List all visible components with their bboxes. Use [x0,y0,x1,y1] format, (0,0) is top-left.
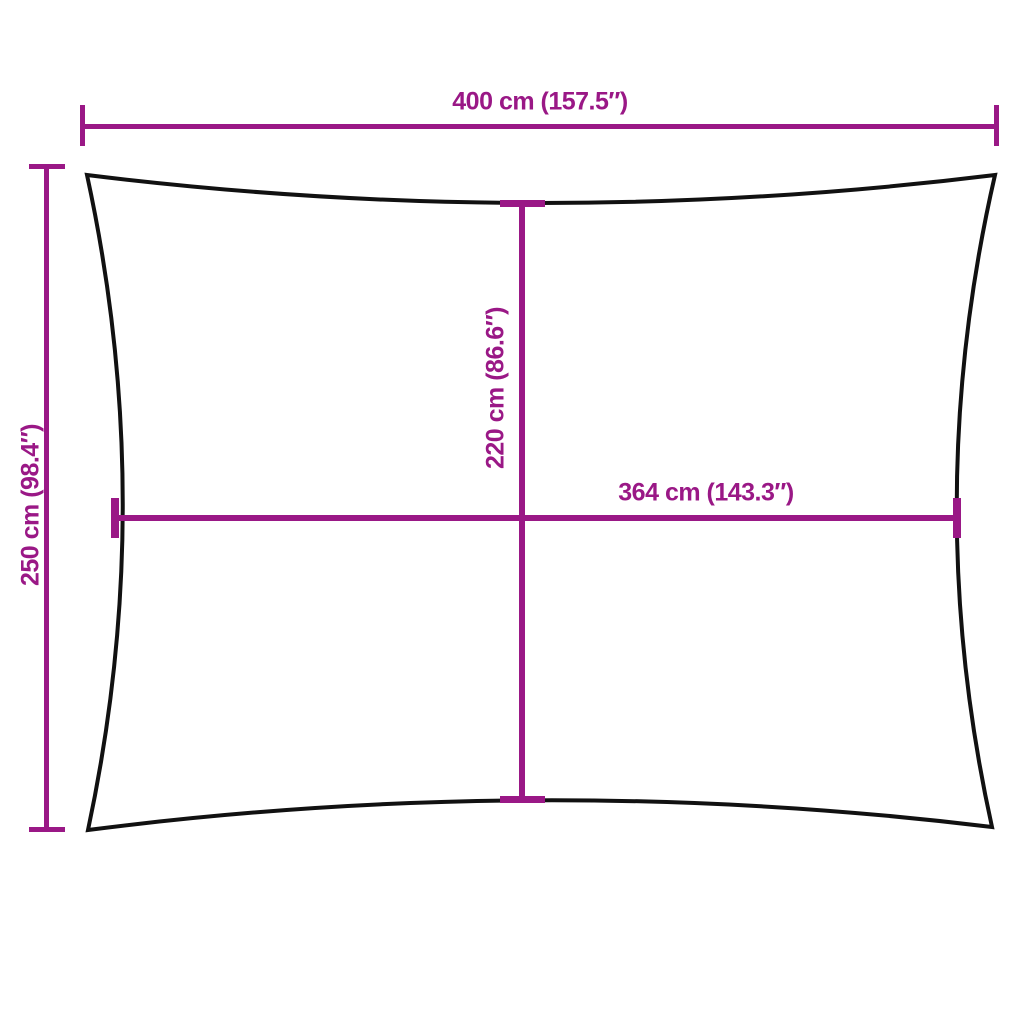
dimension-label-top-width: 400 cm (157.5″) [452,90,627,115]
dimension-label-left-height: 250 cm (98.4″) [19,424,44,586]
dimension-tick [29,164,65,169]
dimension-tick [500,200,545,207]
dimension-diagram: 400 cm (157.5″) 250 cm (98.4″) 220 cm (8… [0,0,1024,1024]
dimension-tick [500,796,545,803]
sail-outline [0,0,1024,1024]
dimension-line [115,515,958,521]
dimension-tick [953,498,961,538]
dimension-tick [80,105,85,146]
dimension-tick [994,105,999,146]
dimension-line [519,203,525,801]
dimension-line [83,124,997,129]
dimension-line [44,166,49,831]
dimension-tick [29,827,65,832]
dimension-label-inner-height: 220 cm (86.6″) [484,307,509,469]
dimension-tick [111,498,119,538]
sail-outline-path [87,175,995,830]
dimension-label-inner-width: 364 cm (143.3″) [618,481,793,506]
